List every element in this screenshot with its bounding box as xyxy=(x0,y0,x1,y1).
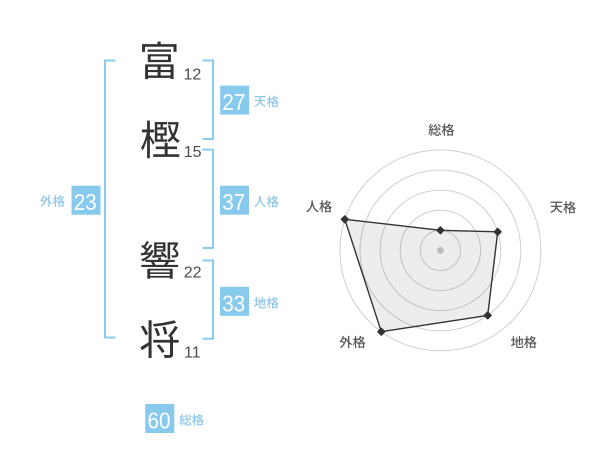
svg-text:23: 23 xyxy=(74,189,97,215)
svg-text:37: 37 xyxy=(222,189,245,215)
svg-text:15: 15 xyxy=(184,144,202,161)
svg-text:60: 60 xyxy=(148,408,171,434)
svg-text:22: 22 xyxy=(184,265,202,282)
svg-text:11: 11 xyxy=(184,345,201,362)
svg-text:12: 12 xyxy=(184,66,202,83)
svg-text:27: 27 xyxy=(222,89,245,115)
svg-text:33: 33 xyxy=(222,290,245,316)
